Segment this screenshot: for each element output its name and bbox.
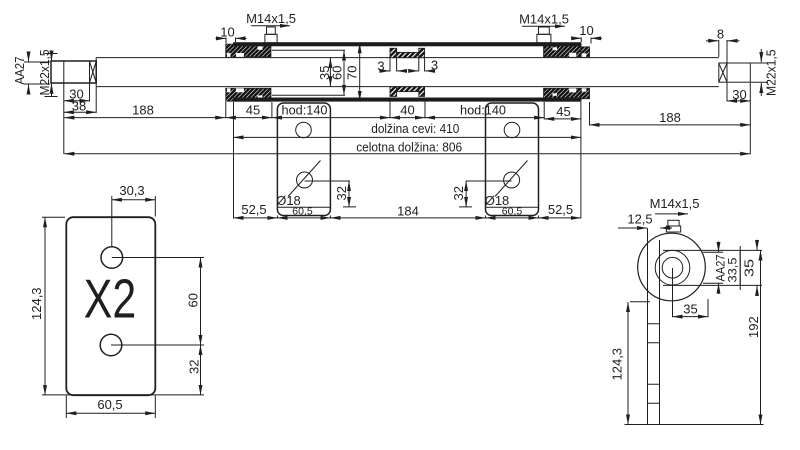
svg-text:35: 35 [683,302,697,317]
svg-text:10: 10 [579,23,593,38]
svg-text:M22x1,5: M22x1,5 [764,50,779,97]
svg-text:X2: X2 [84,268,136,329]
svg-text:188: 188 [132,103,154,118]
svg-text:45: 45 [246,103,260,118]
svg-text:M14x1,5: M14x1,5 [650,196,700,211]
svg-text:30,3: 30,3 [119,183,144,198]
svg-text:35: 35 [742,259,757,277]
svg-text:184: 184 [397,203,419,218]
svg-text:188: 188 [659,110,681,125]
svg-text:124,3: 124,3 [610,348,625,381]
svg-text:32: 32 [334,186,349,200]
svg-text:52,5: 52,5 [548,202,573,217]
svg-text:celotna dolžina: 806: celotna dolžina: 806 [356,139,462,154]
svg-text:60: 60 [186,293,201,307]
svg-text:60,5: 60,5 [502,206,523,218]
svg-text:32: 32 [451,186,466,200]
svg-text:60: 60 [330,66,345,80]
svg-text:M14x1,5: M14x1,5 [246,11,296,26]
svg-text:hod:140: hod:140 [282,103,328,118]
svg-text:M14x1,5: M14x1,5 [519,12,569,27]
svg-text:30: 30 [732,87,746,102]
svg-text:60,5: 60,5 [97,397,122,412]
svg-text:M22x1,5: M22x1,5 [37,50,52,96]
svg-text:70: 70 [345,66,360,80]
svg-text:8: 8 [717,27,724,42]
svg-text:33,5: 33,5 [728,258,740,283]
svg-text:38: 38 [72,98,86,113]
svg-text:32: 32 [187,360,202,374]
svg-text:12,5: 12,5 [627,212,652,227]
svg-text:52,5: 52,5 [241,202,266,217]
svg-text:192: 192 [746,316,761,338]
svg-text:hod:140: hod:140 [460,103,506,118]
svg-text:45: 45 [556,104,570,119]
svg-text:3: 3 [431,58,438,73]
svg-text:AA27: AA27 [12,57,27,85]
svg-text:10: 10 [220,25,234,40]
svg-text:40: 40 [400,103,414,118]
svg-text:dolžina cevi: 410: dolžina cevi: 410 [371,121,459,136]
svg-text:124,3: 124,3 [29,287,44,320]
svg-text:AA27: AA27 [716,255,728,282]
svg-text:60,5: 60,5 [292,206,313,218]
